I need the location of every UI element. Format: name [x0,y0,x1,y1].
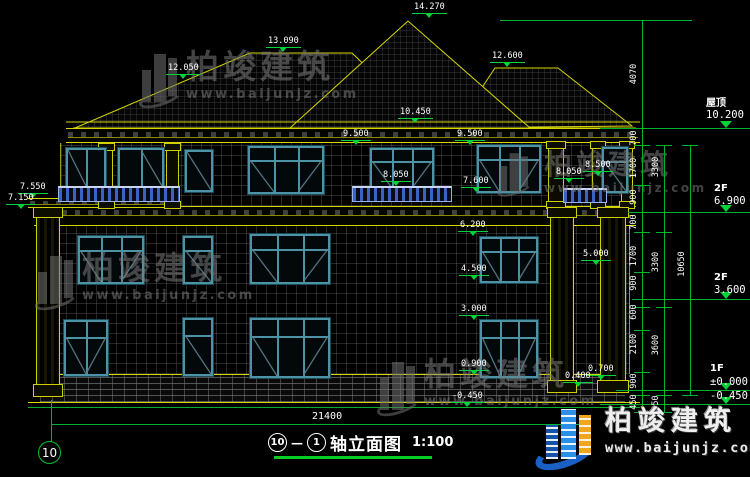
elevation-marker: 12.050 [166,63,201,75]
title-axis-bubble-end: 1 [307,433,326,452]
title-axis-dash: — [291,436,303,450]
elevation-marker: 9.500 [455,129,485,141]
dimension-tick [682,395,698,396]
elevation-marker: 12.600 [490,51,525,63]
elevation-marker: 9.500 [341,129,371,141]
dimension-label: 3300 [649,245,663,279]
dimension-line [500,20,692,21]
title-text: 轴立面图 [330,430,402,455]
level-label: 1F [710,363,724,374]
dimension-label: 2100 [627,327,641,361]
window [370,148,434,190]
dimension-label: 700 [627,205,641,239]
elevation-marker: 14.270 [412,2,447,14]
elevation-marker: 4.500 [459,264,489,276]
level-value: ±0.000 [710,376,748,388]
dimension-label: 4070 [627,57,641,91]
title-underline [274,456,432,459]
elevation-marker: 10.450 [398,107,433,119]
level-value: 6.900 [714,195,746,207]
elevation-marker: 7.150 [6,193,36,205]
title-scale: 1:100 [412,435,453,450]
company-logo-site: www.baijunjz.com [605,440,750,456]
title-axis-bubble-start: 10 [268,433,287,452]
watermark-right: 柏竣建筑 www.baijunjz.com [500,150,707,204]
window [248,146,324,194]
elevation-marker: 5.000 [581,249,611,261]
level-label: 2F [714,272,728,283]
elevation-marker: 3.000 [459,304,489,316]
level-value: 3.600 [714,284,746,296]
level-triangle-icon [720,121,732,134]
elevation-marker: 8.050 [554,167,584,179]
dimension-line [690,145,691,395]
balcony-balustrade [352,186,452,202]
watermark-logo-icon [142,50,178,104]
dimension-tick [656,145,672,146]
elevation-marker: 0.900 [459,359,489,371]
drawing-title: 10 — 1 轴立面图 1:100 [268,430,453,455]
watermark-logo-icon [38,252,74,306]
elevation-marker: 6.200 [458,220,488,232]
dimension-label: 3600 [649,328,663,362]
company-logo-brand: 柏竣建筑 [605,407,750,437]
level-value: -0.450 [710,390,748,402]
dimension-line [51,400,52,442]
dimension-line [51,424,588,425]
company-logo-icon [540,407,598,469]
level-label: 屋顶 [706,94,726,109]
elevation-marker: 8.050 [381,170,411,182]
watermark-logo-icon [380,358,416,412]
elevation-marker: -0.450 [450,391,485,403]
dimension-label: 3300 [649,150,663,184]
watermark-top: 柏竣建筑 www.baijunjz.com [142,50,359,104]
dimension-label: 600 [627,295,641,329]
level-label: 2F [714,183,728,194]
dimension-line [642,20,643,412]
watermark-logo-icon [500,150,529,193]
cad-elevation-drawing: 10 — 1 轴立面图 1:100 10 21400 柏竣建筑 www.baij… [0,0,750,477]
dimension-label: 700 [627,121,641,155]
elevation-marker: 7.600 [461,176,491,188]
dimension-line [664,145,665,412]
bottom-dimension-text: 21400 [312,411,342,422]
dimension-tick [682,145,698,146]
elevation-marker: 8.500 [583,160,613,172]
elevation-marker: 13.090 [266,36,301,48]
window [185,150,213,192]
window [118,148,164,188]
window [480,237,538,283]
window [64,320,108,376]
dimension-tick [656,232,672,233]
axis-bubble-10: 10 [38,441,61,464]
dimension-tick [656,307,672,308]
window [250,234,330,284]
elevation-marker: 0.400 [563,371,593,383]
window [183,318,213,376]
level-value: 10.200 [706,109,744,121]
dimension-label: 10650 [675,247,689,281]
second-floor-cornice-band [34,206,636,226]
balcony-balustrade [58,186,180,202]
company-logo: 柏竣建筑 www.baijunjz.com [540,407,750,469]
window [66,148,106,188]
watermark-left: 柏竣建筑 www.baijunjz.com [38,252,255,306]
window [250,318,330,378]
